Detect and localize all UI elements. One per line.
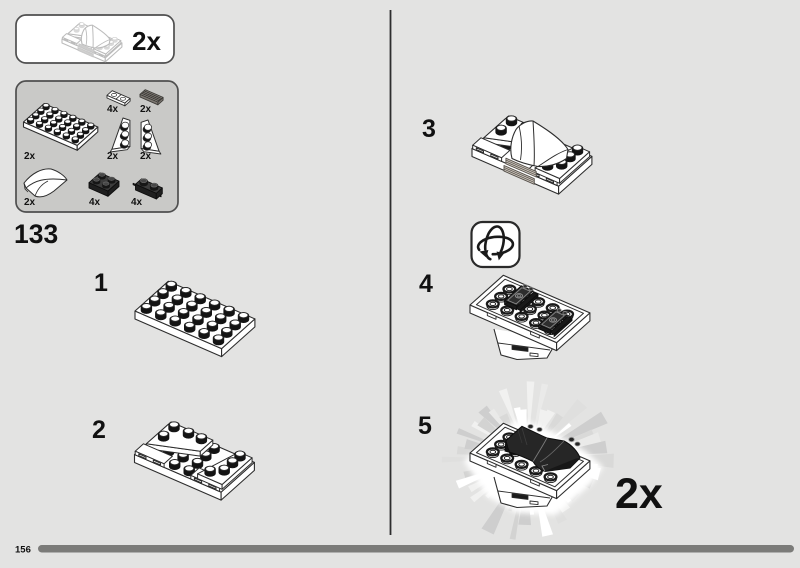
svg-text:2x: 2x: [24, 197, 36, 208]
svg-text:5: 5: [418, 412, 432, 440]
svg-text:133: 133: [14, 219, 58, 249]
svg-text:2x: 2x: [107, 151, 119, 162]
svg-text:2x: 2x: [615, 470, 663, 518]
svg-text:2x: 2x: [132, 26, 161, 56]
svg-text:1: 1: [94, 269, 108, 297]
svg-text:4x: 4x: [107, 104, 119, 115]
svg-text:156: 156: [15, 545, 31, 556]
svg-text:3: 3: [422, 115, 436, 143]
svg-text:2x: 2x: [140, 104, 152, 115]
svg-text:2: 2: [92, 416, 106, 444]
svg-text:4x: 4x: [131, 197, 143, 208]
svg-text:4: 4: [419, 270, 433, 298]
svg-text:2x: 2x: [140, 151, 152, 162]
svg-text:4x: 4x: [89, 197, 101, 208]
svg-text:2x: 2x: [24, 151, 36, 162]
